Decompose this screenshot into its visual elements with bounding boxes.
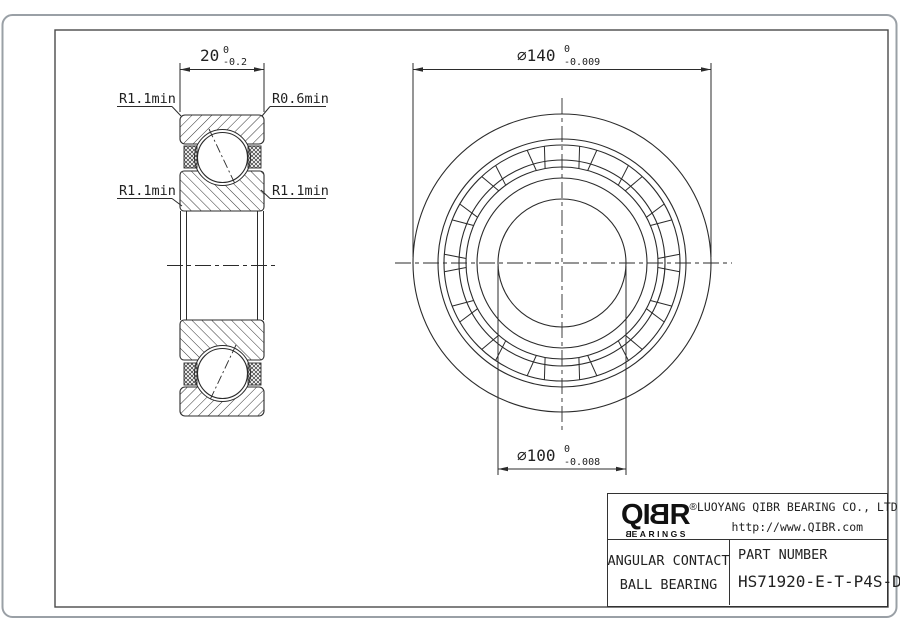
bore-region — [167, 211, 278, 320]
cage-bridge-edge — [646, 204, 664, 217]
section-view: 20 0 -0.2 R1.1min R0.6min R1.1min R1.1mi… — [117, 45, 329, 416]
cage-bridge-edge — [650, 301, 672, 307]
front-view: ⌀140 0 -0.009 ⌀100 0 -0.008 — [395, 44, 732, 475]
cage-section-left — [184, 363, 197, 385]
registered-mark: ® — [690, 502, 697, 513]
company-name: LUOYANG QIBR BEARING CO., LTD — [697, 497, 898, 517]
cage-bridge-edge — [658, 254, 680, 258]
part-number-value: HS71920-E-T-P4S-DF — [738, 569, 900, 595]
od-dim-tol-lower: -0.009 — [564, 57, 600, 68]
product-type-cell: ANGULAR CONTACT BALL BEARING — [608, 540, 729, 605]
upper-section — [180, 115, 264, 211]
dim-arrow-left — [413, 67, 423, 72]
cage-section-right — [248, 146, 261, 168]
dim-arrow-left — [498, 467, 508, 472]
cage-bridge-edge — [579, 146, 580, 168]
r-label-bottom-right: R1.1min — [272, 183, 329, 199]
dim-arrow-right — [254, 67, 264, 72]
dim-arrow-right — [701, 67, 711, 72]
width-dim-value: 20 — [200, 46, 219, 65]
title-block-detail-row: ANGULAR CONTACT BALL BEARING PART NUMBER… — [608, 539, 887, 605]
title-block: QIBR® BEARINGS LUOYANG QIBR BEARING CO.,… — [607, 493, 888, 607]
cage-bridge-edge — [460, 309, 478, 322]
cage-bridge-edge — [646, 309, 664, 322]
cage-bridge-edge — [496, 166, 506, 186]
part-number-cell: PART NUMBER HS71920-E-T-P4S-DF — [729, 540, 900, 605]
bore-dim-tol-upper: 0 — [564, 444, 570, 455]
cage-bridge-edge — [452, 301, 474, 307]
cage-section-right — [248, 363, 261, 385]
od-dim-value: ⌀140 — [517, 46, 556, 65]
logo-wordmark: QIBR® — [621, 495, 697, 528]
cage-bridge-edge — [618, 166, 628, 186]
cage-bridge-edge — [444, 254, 466, 258]
od-dim-tol-upper: 0 — [564, 44, 570, 55]
cage-bridge-edge — [588, 150, 597, 170]
dim-arrow-left — [180, 67, 190, 72]
width-dimension: 20 0 -0.2 — [180, 45, 264, 112]
company-website: http://www.QIBR.com — [732, 517, 864, 537]
product-line1: ANGULAR CONTACT — [608, 549, 730, 573]
company-info: LUOYANG QIBR BEARING CO., LTD http://www… — [697, 497, 898, 537]
bore-dim-value: ⌀100 — [517, 446, 556, 465]
drawing-sheet: 20 0 -0.2 R1.1min R0.6min R1.1min R1.1mi… — [0, 0, 900, 636]
cage-bridge-edge — [650, 220, 672, 226]
r-label-bottom-left: R1.1min — [119, 183, 176, 199]
cage-bridge-edge — [452, 220, 474, 226]
width-dim-tol-upper: 0 — [223, 45, 229, 56]
part-number-label: PART NUMBER — [738, 545, 900, 565]
product-line2: BALL BEARING — [620, 573, 718, 597]
dim-arrow-right — [616, 467, 626, 472]
title-block-header-row: QIBR® BEARINGS LUOYANG QIBR BEARING CO.,… — [608, 494, 887, 539]
cage-bridge-edge — [496, 341, 506, 361]
cage-bridge-edge — [618, 341, 628, 361]
ball — [198, 349, 248, 399]
cage-bridge-edge — [460, 204, 478, 217]
r-label-top-left: R1.1min — [119, 91, 176, 107]
cage-bridge-edge — [527, 356, 536, 376]
width-dim-tol-lower: -0.2 — [223, 57, 247, 68]
r-label-top-right: R0.6min — [272, 91, 329, 107]
lower-section — [180, 320, 264, 416]
cage-bridge-edge — [588, 356, 597, 376]
cage-bridge-edge — [579, 358, 580, 380]
bore-dim-tol-lower: -0.008 — [564, 457, 600, 468]
cage-bridge-edge — [527, 150, 536, 170]
cage-bridge-edge — [544, 146, 545, 168]
cage-bridge-edge — [658, 268, 680, 272]
ball — [198, 133, 248, 183]
cage-section-left — [184, 146, 197, 168]
cage-bridge-edge — [444, 268, 466, 272]
company-logo: QIBR® BEARINGS — [608, 495, 697, 539]
cage-bridge-edge — [544, 358, 545, 380]
